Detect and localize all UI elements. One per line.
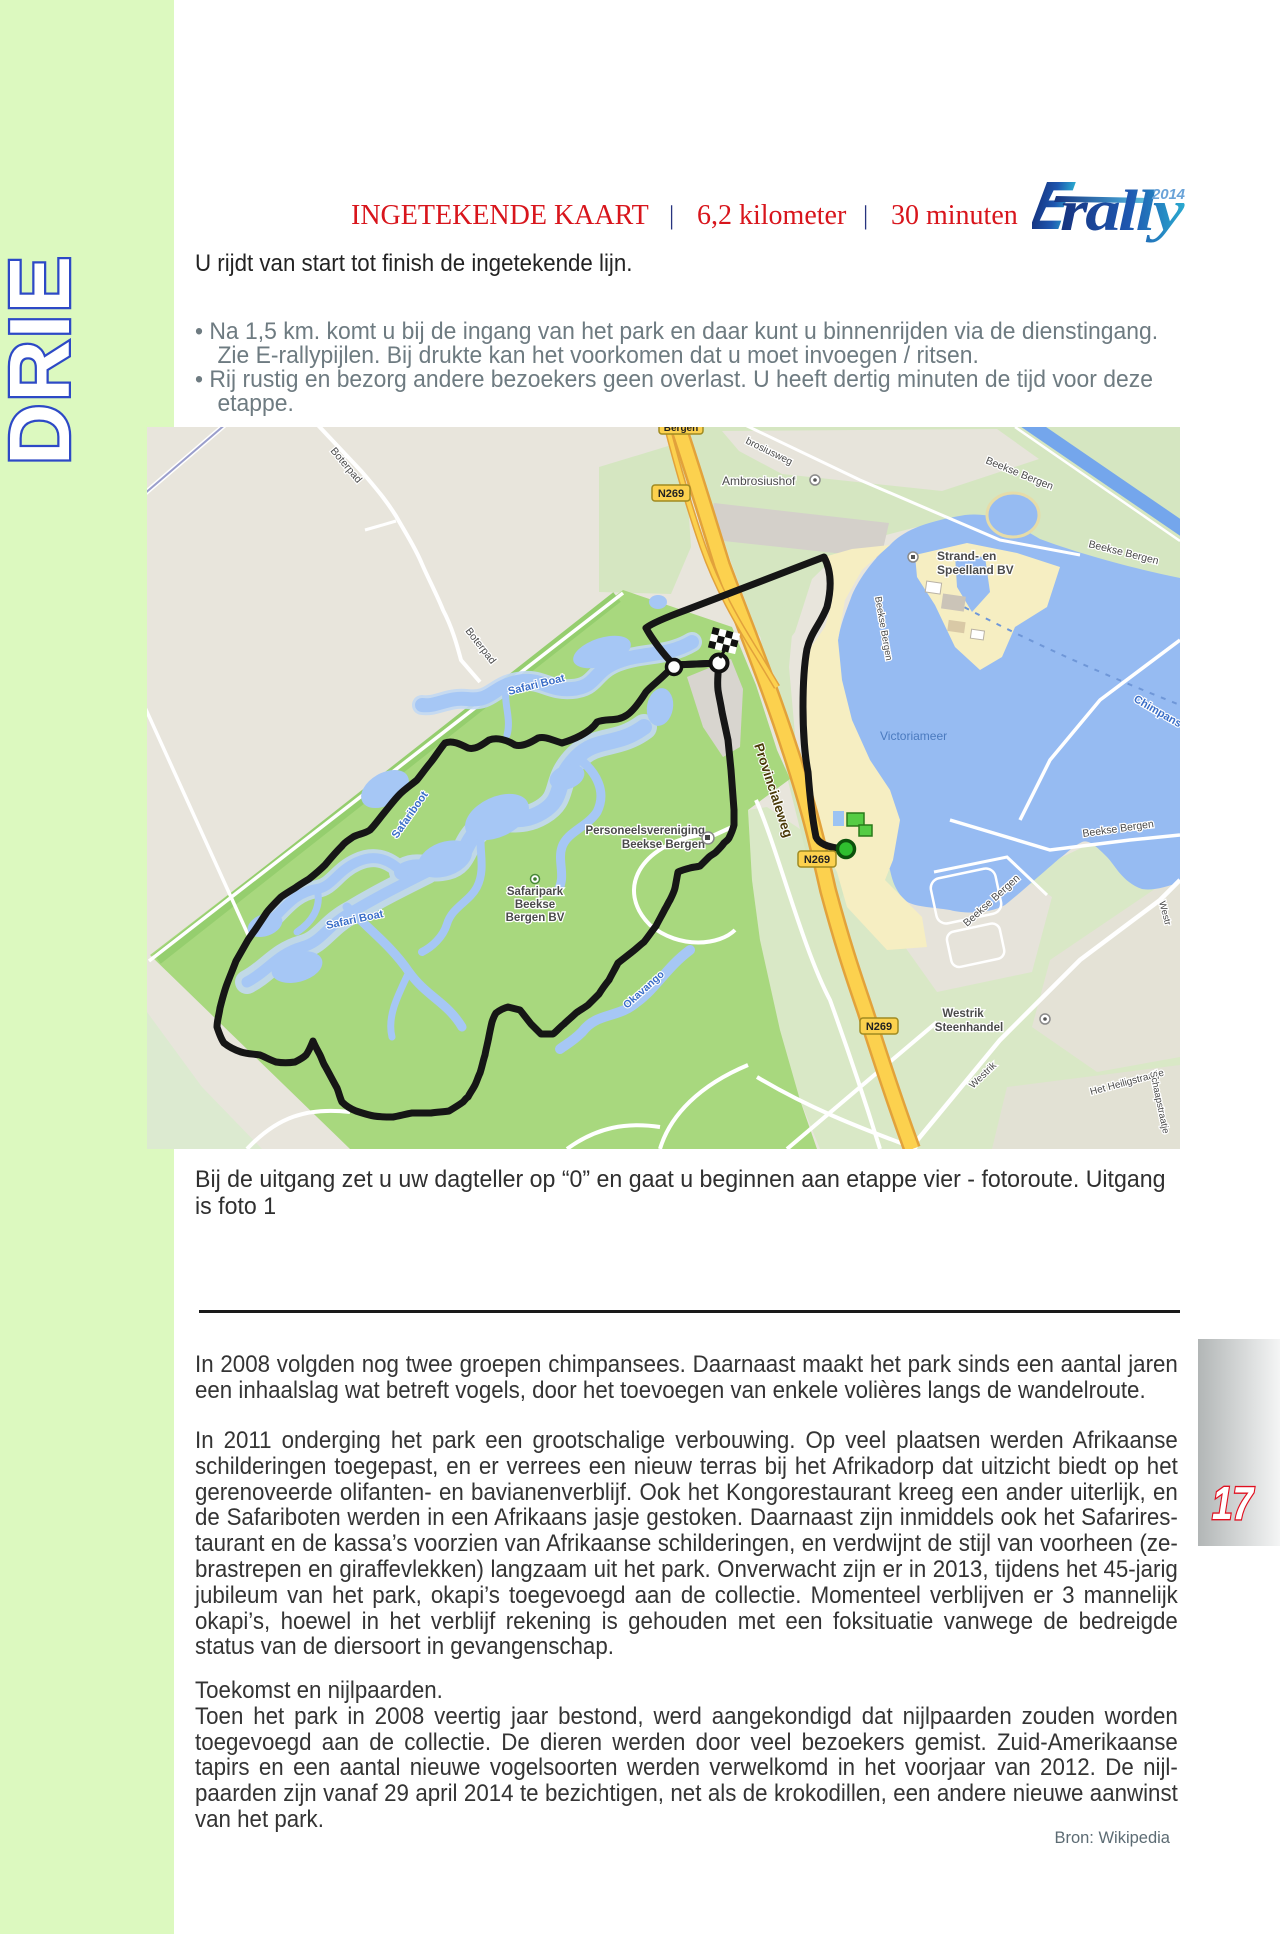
svg-text:N269: N269 (658, 488, 684, 500)
svg-text:17: 17 (1212, 1477, 1255, 1529)
svg-text:Steenhandel: Steenhandel (935, 1022, 1003, 1034)
svg-text:Speelland BV: Speelland BV (937, 563, 1014, 577)
svg-text:N269: N269 (866, 1021, 892, 1033)
svg-text:DRIE: DRIE (0, 254, 88, 465)
svg-text:N269: N269 (804, 854, 830, 866)
svg-text:Ambrosiushof: Ambrosiushof (722, 474, 796, 488)
svg-text:Bergen: Bergen (664, 427, 698, 434)
svg-text:Beekse: Beekse (515, 899, 555, 911)
svg-text:2014: 2014 (1151, 186, 1186, 203)
svg-text:Safaripark: Safaripark (507, 886, 564, 898)
svg-text:Westrik: Westrik (942, 1008, 984, 1020)
svg-text:Bergen BV: Bergen BV (506, 912, 565, 924)
svg-text:Victoriameer: Victoriameer (880, 729, 947, 743)
svg-text:Beekse Bergen: Beekse Bergen (622, 839, 705, 851)
svg-text:Personeelsvereniging: Personeelsvereniging (585, 825, 705, 837)
svg-text:Strand- en: Strand- en (937, 549, 996, 563)
